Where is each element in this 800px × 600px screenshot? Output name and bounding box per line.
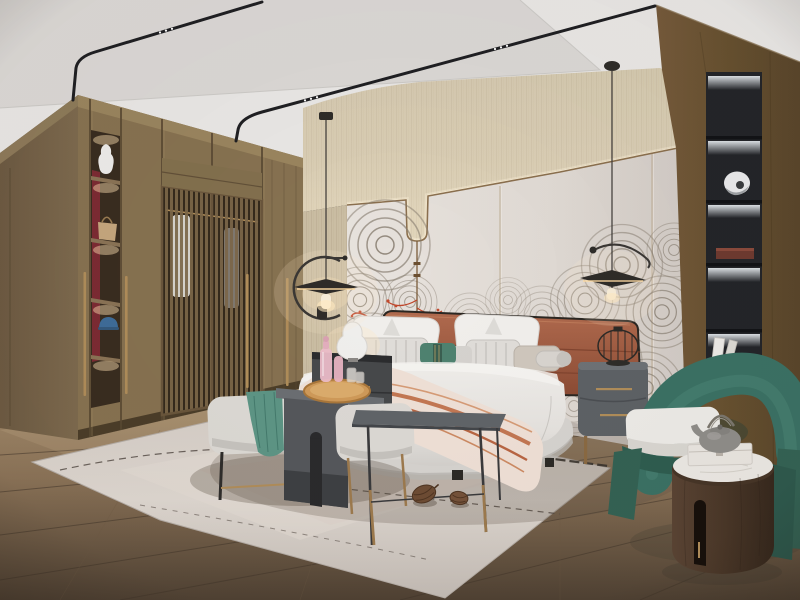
scene-canvas [0,0,800,600]
vignette-overlay [0,0,800,600]
bedroom-scene [0,0,800,600]
